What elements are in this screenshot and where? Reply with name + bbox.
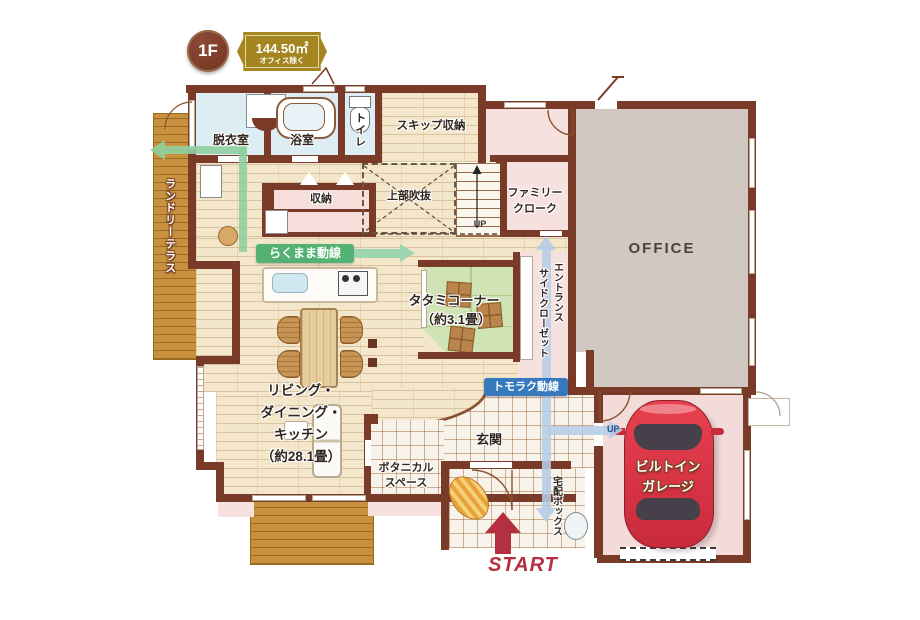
void-label: 上部吹抜	[366, 190, 452, 203]
wall-segment	[375, 85, 382, 163]
tatami-label-1: タタミコーナー	[398, 294, 510, 309]
wall-segment	[594, 395, 603, 423]
delivery-box-fixture	[564, 512, 588, 540]
wall-segment	[186, 85, 486, 93]
skip-storage-label: スキップ収納	[385, 120, 477, 133]
floor-cushion	[448, 326, 476, 354]
start-arrow-head	[485, 512, 521, 533]
door-gap	[292, 156, 318, 162]
window	[749, 210, 755, 274]
storage-box	[265, 210, 288, 234]
hanger-mark	[300, 172, 318, 185]
floor-badge-label: 1F	[187, 30, 229, 72]
chair	[340, 316, 363, 344]
toilet-label: トイレ	[353, 112, 366, 148]
window	[749, 318, 755, 366]
wood-deck	[250, 500, 374, 565]
wall-segment	[594, 446, 603, 558]
garage-label-2: ガレージ	[624, 480, 712, 495]
stairs-up-label: UP	[468, 219, 492, 229]
office-label: OFFICE	[606, 240, 718, 257]
window	[345, 86, 365, 92]
ldk-label-1: リビング・	[258, 383, 344, 399]
entrance-label: 玄関	[460, 433, 518, 448]
wall-segment	[338, 85, 345, 163]
hanger-mark	[336, 172, 354, 185]
ldk-label-2: ダイニング・	[258, 405, 344, 421]
stove-burner	[353, 275, 360, 282]
area-badge: 144.50㎡ オフィス除く	[237, 32, 327, 71]
start-label: START	[468, 554, 578, 577]
post	[368, 339, 377, 348]
green-flow-line	[239, 146, 247, 252]
office-door-gap	[595, 101, 617, 109]
tatami-label-2: （約3.1畳）	[400, 313, 512, 328]
laundry-basket	[218, 226, 238, 246]
chair	[277, 316, 300, 344]
storage-shelf	[274, 212, 369, 232]
green-flow-arrow-left	[150, 140, 165, 160]
window	[749, 138, 755, 188]
kitchen-sink	[272, 273, 308, 293]
wall-segment	[513, 252, 520, 362]
blue-flow-line	[548, 426, 610, 435]
entrance-closet-label-col2: サイドクローゼット	[536, 268, 548, 358]
wall-segment	[232, 261, 240, 362]
laundry-terrace-label: ランドリーテラス	[163, 178, 176, 274]
botanical-label-2: スペース	[370, 477, 442, 490]
floor-badge: 1F	[187, 30, 229, 72]
chair	[340, 350, 363, 378]
botanical-edge	[368, 500, 444, 516]
garage-up-label: UP	[607, 424, 620, 434]
family-cloak-label-1: ファミリー	[502, 187, 568, 200]
wall-segment	[418, 260, 518, 267]
delivery-box-label: 宅配ボックス	[550, 476, 562, 536]
storage-label: 収納	[293, 193, 349, 206]
chair	[277, 350, 300, 378]
area-note: オフィス除く	[237, 55, 327, 66]
window	[197, 366, 204, 450]
stove-burner	[342, 275, 349, 282]
dining-table	[300, 308, 338, 388]
green-flow-arrow-right	[400, 244, 415, 262]
start-arrow-shaft	[495, 532, 511, 554]
garage-label-1: ビルトイン	[624, 460, 712, 475]
side-closet-shelf	[520, 256, 533, 360]
ldk-label-3: キッチン	[258, 427, 344, 443]
botanical-tile	[368, 420, 444, 502]
door-gap	[470, 462, 512, 468]
blue-flow-badge: トモラク動線	[484, 378, 568, 396]
window	[700, 388, 742, 394]
window	[312, 495, 366, 501]
ldk-label-4: （約28.1畳）	[256, 449, 346, 465]
family-cloak-label-2: クローク	[502, 203, 568, 216]
wall-segment	[478, 85, 486, 165]
window	[189, 100, 195, 150]
wall-segment	[586, 350, 594, 392]
green-flow-line	[354, 249, 400, 258]
bath-label: 浴室	[275, 134, 329, 148]
window	[744, 450, 750, 520]
hall-cabinet	[200, 165, 222, 198]
entrance-closet-label-col1: エントランス	[551, 262, 563, 322]
blue-flow-arrow-up	[536, 236, 556, 250]
window	[252, 495, 306, 501]
wall-segment	[418, 352, 518, 359]
botanical-label-1: ボタニカル	[370, 462, 442, 475]
car-highlight	[640, 404, 696, 414]
bathtub-inner	[283, 103, 325, 131]
car-mirror	[711, 428, 724, 435]
car-windshield	[634, 424, 702, 450]
green-flow-badge: らくまま動線	[256, 244, 354, 263]
floorplan-canvas: ランドリーテラス	[0, 0, 920, 620]
exterior-step	[748, 398, 790, 426]
window	[504, 102, 546, 108]
car-rear-window	[636, 498, 700, 520]
wall-segment	[568, 101, 576, 395]
wall-segment	[441, 466, 449, 550]
post	[368, 358, 377, 367]
ldk-south-edge	[218, 502, 254, 517]
dressing-label: 脱衣室	[200, 134, 262, 148]
window	[303, 86, 335, 92]
